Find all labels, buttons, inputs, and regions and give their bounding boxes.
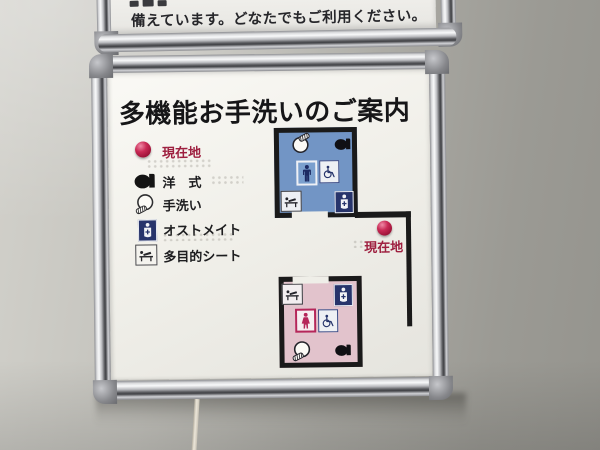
main-frame-corner-top-right bbox=[425, 50, 449, 74]
map-pink-sheet-icon bbox=[282, 284, 303, 305]
map-pink-woman-icon bbox=[295, 308, 316, 332]
main-frame-bottom bbox=[96, 377, 450, 400]
map-blue-sink-icon bbox=[289, 132, 312, 155]
current-location-dot-icon bbox=[135, 141, 151, 157]
map-pink-ostomate-icon bbox=[334, 284, 353, 306]
multipurpose-sheet-icon bbox=[135, 244, 157, 265]
braille-dots bbox=[163, 232, 235, 241]
map-blue-ostomate-icon bbox=[335, 191, 354, 213]
legend-label-hand-wash: 手洗い bbox=[163, 195, 202, 214]
map-current-location-label: 現在地 bbox=[364, 236, 403, 255]
upper-sign-clipped-line bbox=[158, 0, 167, 6]
map-pink-toilet-icon bbox=[334, 343, 353, 357]
map-current-location-dot-icon bbox=[377, 221, 392, 236]
restroom-guide-sign: 多機能お手洗いのご案内 現在地 洋 式 手洗い オストメイト 多目的シート bbox=[88, 48, 454, 408]
braille-dots bbox=[353, 240, 363, 248]
sign-title: 多機能お手洗いのご案内 bbox=[114, 90, 414, 131]
main-frame-right bbox=[429, 54, 449, 394]
legend-label-western-toilet: 洋 式 bbox=[162, 172, 201, 191]
upper-sign-clipped-line bbox=[130, 1, 139, 7]
upper-sign-clipped-line bbox=[143, 0, 154, 7]
braille-dots bbox=[147, 159, 211, 169]
main-frame-corner-top-left bbox=[89, 54, 113, 78]
map-blue-sheet-icon bbox=[281, 191, 302, 212]
map-corridor-wall-horizontal bbox=[355, 211, 411, 217]
western-toilet-icon bbox=[133, 172, 158, 189]
map-blue-wheelchair-icon bbox=[319, 160, 339, 183]
photo-restroom-guide-sign: 備えています。どなたでもご利用ください。 多機能お手洗いのご案内 現在地 洋 式… bbox=[0, 0, 600, 450]
map-blue-man-icon bbox=[296, 160, 317, 185]
legend-label-multipurpose-sheet: 多目的シート bbox=[163, 245, 241, 265]
map-blue-door-opening bbox=[292, 211, 328, 219]
map-pink-wheelchair-icon bbox=[318, 309, 338, 332]
main-frame-corner-bottom-right bbox=[429, 376, 453, 400]
map-blue-toilet-icon bbox=[334, 137, 353, 151]
map-pink-sink-icon bbox=[290, 340, 312, 362]
braille-dots bbox=[211, 175, 243, 184]
main-frame-corner-bottom-left bbox=[93, 380, 117, 404]
hand-wash-sink-icon bbox=[134, 192, 156, 214]
ostomate-icon bbox=[138, 219, 157, 241]
map-pink-door-opening bbox=[293, 276, 329, 283]
